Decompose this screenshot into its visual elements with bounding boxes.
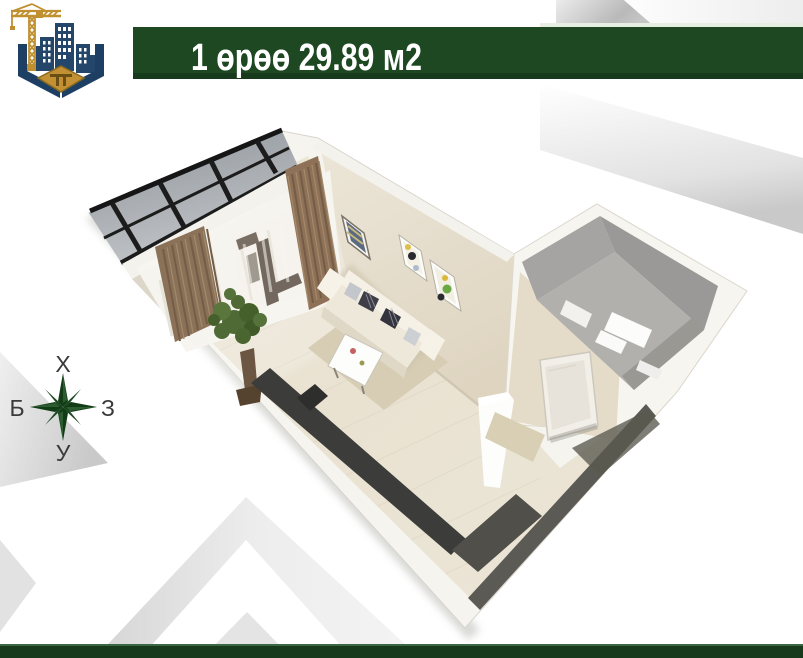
svg-text:У: У — [56, 440, 71, 466]
svg-text:Х: Х — [55, 351, 70, 377]
svg-text:Б: Б — [9, 395, 24, 421]
svg-text:1 өрөө 29.89 м2: 1 өрөө 29.89 м2 — [191, 37, 422, 79]
svg-text:З: З — [101, 395, 115, 421]
